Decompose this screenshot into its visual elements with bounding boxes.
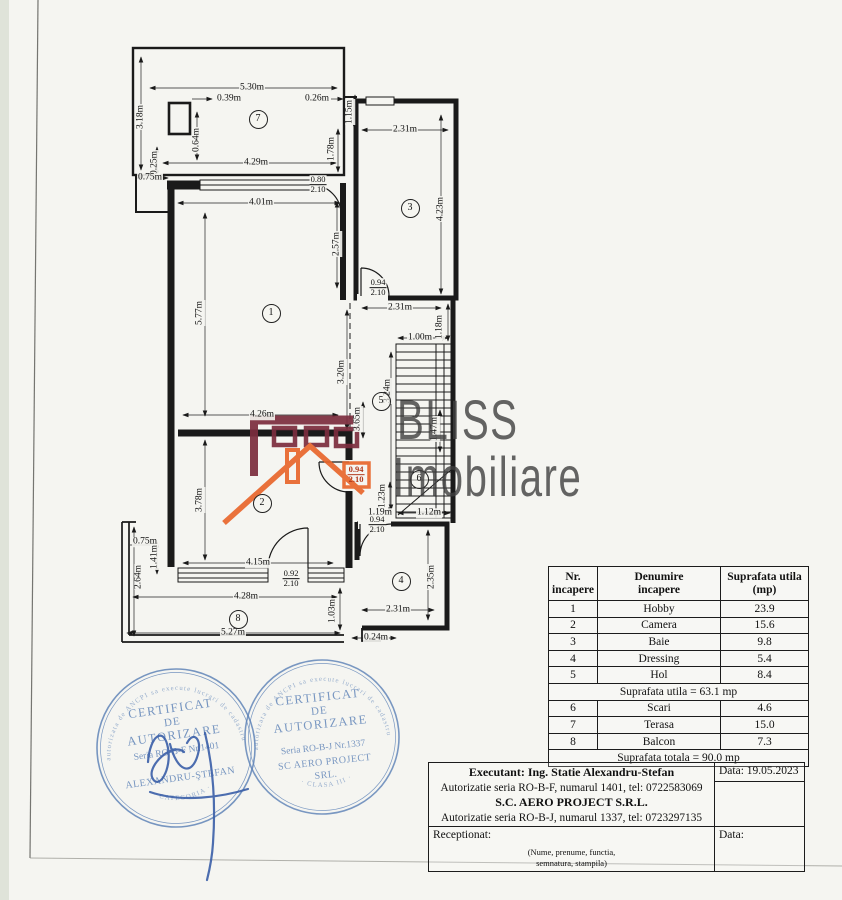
room-name-cell: Scari xyxy=(598,700,721,717)
table-row: 1Hobby23.9 xyxy=(549,601,809,618)
room-nr-cell: 6 xyxy=(549,700,598,717)
watermark-imobiliare: Imobiliare xyxy=(393,449,582,505)
table-row: Suprafata utila = 63.1 mp xyxy=(549,683,809,700)
room-number-7: 7 xyxy=(249,110,268,129)
date-empty-label: Data: xyxy=(715,826,804,844)
table-row: 7Terasa15.0 xyxy=(549,717,809,734)
door-size-label: 0.942.10 xyxy=(370,278,387,298)
door-size-label: 0.942.10 xyxy=(348,465,365,485)
door-size-label: 0.802.10 xyxy=(310,175,327,195)
table-row: 2Camera15.6 xyxy=(549,617,809,634)
dimension-label: 3.65m xyxy=(353,406,363,432)
area-table-body: 1Hobby23.92Camera15.63Baie9.84Dressing5.… xyxy=(549,601,809,767)
dimension-label: 0.24m xyxy=(363,633,389,643)
room-number-4: 4 xyxy=(392,572,411,591)
scanned-floor-plan-page: autorizata de ANCPI sa execute lucrari d… xyxy=(0,0,842,900)
dimension-label: 4.15m xyxy=(245,558,271,568)
dimension-label: 4.29m xyxy=(243,158,269,168)
date-value: Data: 19.05.2023 xyxy=(715,763,804,782)
dimension-label: 1.18m xyxy=(435,314,445,340)
receptionat-label: Receptionat: xyxy=(429,826,715,844)
data-cell-wrap: Data: 19.05.2023 xyxy=(715,763,804,826)
dimension-label: 1.12m xyxy=(416,508,442,518)
room-nr-cell: 8 xyxy=(549,733,598,750)
dimension-label: 4.28m xyxy=(233,592,259,602)
dimension-label: 3.18m xyxy=(136,104,146,130)
room-nr-cell: 1 xyxy=(549,601,598,618)
room-nr-cell: 2 xyxy=(549,617,598,634)
dimension-label: 0.39m xyxy=(216,94,242,104)
room-number-8: 8 xyxy=(229,610,248,629)
watermark-bliss: BLISS xyxy=(397,392,519,448)
room-area-cell: 8.4 xyxy=(721,667,809,684)
room-name-cell: Baie xyxy=(598,634,721,651)
dimension-label: 3.78m xyxy=(195,487,205,513)
room-name-cell: Hol xyxy=(598,667,721,684)
room-name-cell: Terasa xyxy=(598,717,721,734)
signature-hint: (Nume, prenume, functia, semnatura, stam… xyxy=(429,844,715,871)
dimension-label: 1.23m xyxy=(378,483,388,509)
dimension-lines xyxy=(127,57,450,638)
room-nr-cell: 4 xyxy=(549,650,598,667)
header-denumire-incapere: Denumire incapere xyxy=(598,567,721,601)
subtotal-cell: Suprafata utila = 63.1 mp xyxy=(549,683,809,700)
empty-cell xyxy=(715,844,804,871)
executant-authorization-1: Autorizatie seria RO-B-F, numarul 1401, … xyxy=(429,782,714,794)
table-row: 6Scari4.6 xyxy=(549,700,809,717)
dimension-label: 5.30m xyxy=(239,83,265,93)
room-number-2: 2 xyxy=(253,494,272,513)
dimension-label: 4.01m xyxy=(248,198,274,208)
room-name-cell: Hobby xyxy=(598,601,721,618)
dimension-label: 5.77m xyxy=(195,300,205,326)
dimension-label: 2.64m xyxy=(134,564,144,590)
dimension-label: 0.64m xyxy=(192,127,202,153)
dimension-label: 1.00m xyxy=(407,333,433,343)
dimension-label: 3.20m xyxy=(337,359,347,385)
table-header-row: Nr. incapere Denumire incapere Suprafata… xyxy=(549,567,809,601)
executant-info: Executant: Ing. Statie Alexandru-Stefan … xyxy=(429,763,715,826)
table-row: 5Hol8.4 xyxy=(549,667,809,684)
room-area-cell: 15.6 xyxy=(721,617,809,634)
walls xyxy=(122,48,456,642)
room-area-cell: 7.3 xyxy=(721,733,809,750)
stamp2-company2: SRL. xyxy=(314,769,338,782)
room-number-5: 5 xyxy=(372,392,391,411)
room-number-1: 1 xyxy=(262,304,281,323)
dimension-label: 4.23m xyxy=(436,196,446,222)
room-name-cell: Camera xyxy=(598,617,721,634)
area-table: Nr. incapere Denumire incapere Suprafata… xyxy=(548,566,809,767)
table-row: 4Dressing5.4 xyxy=(549,650,809,667)
dimension-label: 4.26m xyxy=(249,410,275,420)
room-name-cell: Dressing xyxy=(598,650,721,667)
dimension-label: 1.41m xyxy=(150,544,160,570)
room-area-cell: 9.8 xyxy=(721,634,809,651)
dimension-label: 2.35m xyxy=(427,564,437,590)
executant-name: Executant: Ing. Statie Alexandru-Stefan xyxy=(429,765,714,780)
door-size-label: 0.942.10 xyxy=(369,515,386,535)
door-size-label: 0.922.10 xyxy=(283,569,300,589)
executant-authorization-2: Autorizatie seria RO-B-J, numarul 1337, … xyxy=(429,812,714,824)
header-suprafata-utila: Suprafata utila (mp) xyxy=(721,567,809,601)
table-row: 3Baie9.8 xyxy=(549,634,809,651)
header-nr-incapere: Nr. incapere xyxy=(549,567,598,601)
room-nr-cell: 5 xyxy=(549,667,598,684)
dimension-label: 2.57m xyxy=(332,231,342,257)
stamp-certificat-autorizare-1: autorizata de ANCPI sa execute lucrari d… xyxy=(87,659,265,837)
dimension-label: 5.27m xyxy=(220,628,246,638)
dimension-label: 0.26m xyxy=(304,94,330,104)
room-name-cell: Balcon xyxy=(598,733,721,750)
dimension-label: 1.15m xyxy=(345,99,355,125)
room-number-3: 3 xyxy=(401,199,420,218)
dimension-label: 2.31m xyxy=(392,125,418,135)
signature-scribble xyxy=(148,733,248,880)
executant-company: S.C. AERO PROJECT S.R.L. xyxy=(429,795,714,810)
dimension-label: 1.78m xyxy=(327,136,337,162)
dimension-label: 0.75m xyxy=(137,173,163,183)
stamp1-name: ALEXANDRU-ŞTEFAN xyxy=(125,765,236,791)
room-area-cell: 15.0 xyxy=(721,717,809,734)
dimension-label: 2.31m xyxy=(387,303,413,313)
dimension-label: 1.03m xyxy=(328,598,338,624)
dimension-label: 2.31m xyxy=(385,605,411,615)
table-row: 8Balcon7.3 xyxy=(549,733,809,750)
room-area-cell: 4.6 xyxy=(721,700,809,717)
stamp-certificat-autorizare-2: autorizata de ANCPI sa execute lucrari d… xyxy=(237,652,406,821)
room-area-cell: 23.9 xyxy=(721,601,809,618)
room-area-cell: 5.4 xyxy=(721,650,809,667)
executant-block: Executant: Ing. Statie Alexandru-Stefan … xyxy=(428,762,805,872)
room-nr-cell: 3 xyxy=(549,634,598,651)
room-nr-cell: 7 xyxy=(549,717,598,734)
